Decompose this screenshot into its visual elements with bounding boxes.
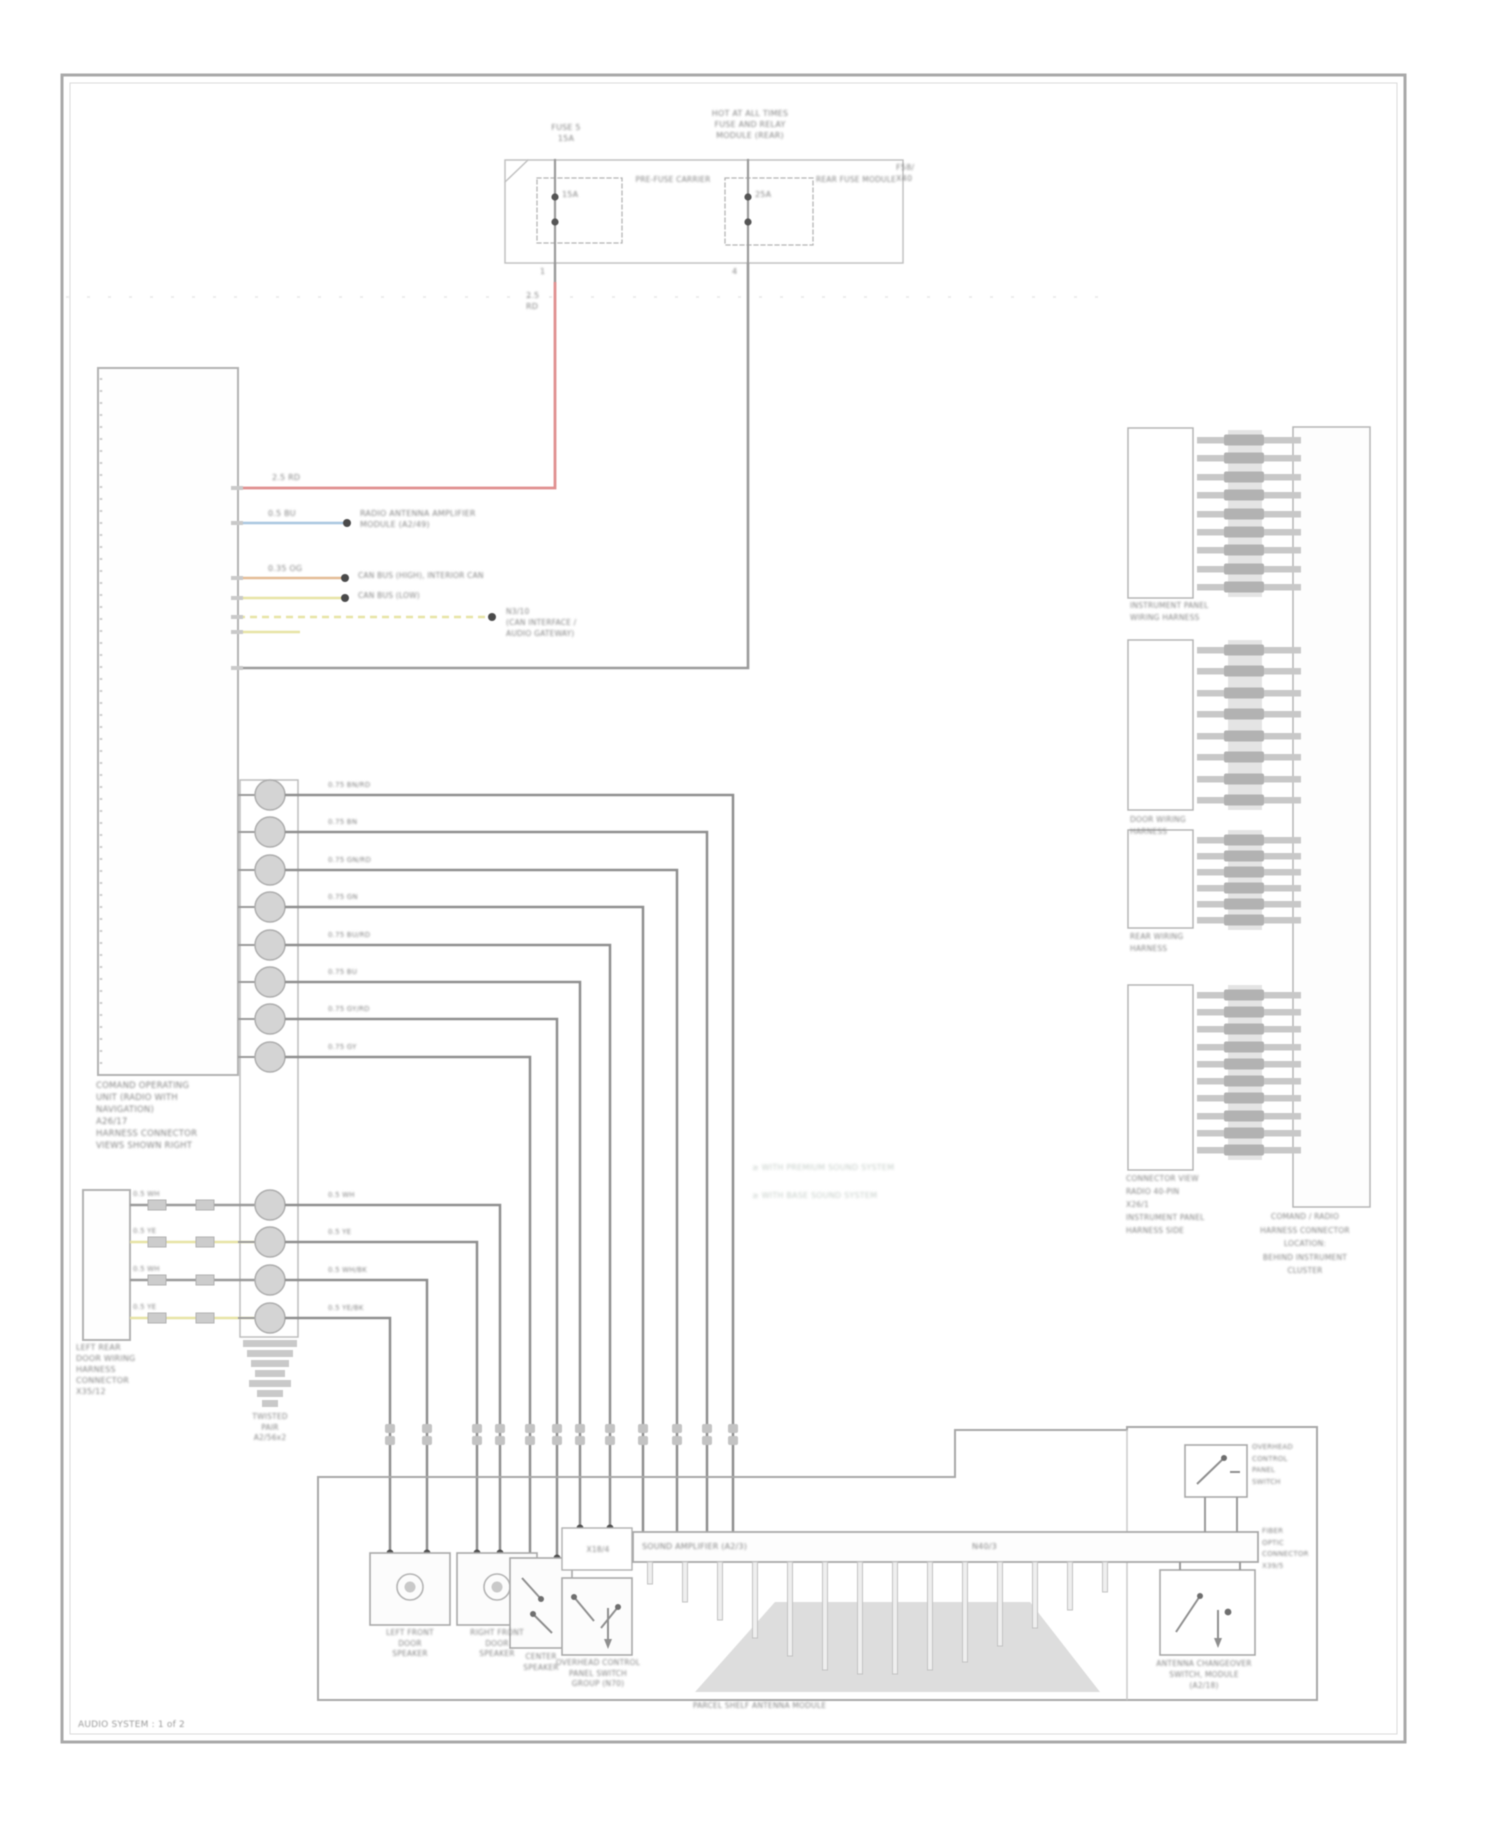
speaker-icon xyxy=(405,1582,416,1593)
can-low-destination: CAN BUS (LOW) xyxy=(358,590,488,601)
connector-panel-label: COMAND / RADIO HARNESS CONNECTOR LOCATIO… xyxy=(1238,1210,1372,1278)
fuse2-amps: 25A xyxy=(755,189,795,200)
connector-block-4 xyxy=(1128,985,1193,1170)
gray-supply-wire xyxy=(238,263,748,668)
wire-gauge-label: 0.75 BU/RD xyxy=(328,931,388,940)
wire-gauge-label: 0.75 BN/RD xyxy=(328,781,388,790)
inline-connector-symbols xyxy=(385,1424,738,1445)
twisted-pair-icon xyxy=(255,780,285,810)
connector-block4-label: CONNECTOR VIEW RADIO 40-PIN X26/1 INSTRU… xyxy=(1126,1172,1242,1237)
red-wire-label: 2.5 RD xyxy=(272,472,328,483)
wire-gauge-label: 0.75 BU xyxy=(328,968,388,977)
right-switch-bottom xyxy=(1160,1562,1255,1655)
diagram-notes: ≥ WITH PREMIUM SOUND SYSTEM ≥ WITH BASE … xyxy=(752,1154,992,1210)
speaker-wire xyxy=(285,1242,477,1553)
wire-gauge-label: 0.5 WH xyxy=(133,1265,173,1274)
wire-gauge-label: 0.5 YE/BK xyxy=(328,1304,388,1313)
diagram-caption: AUDIO SYSTEM : 1 of 2 xyxy=(78,1720,318,1731)
head-unit-box xyxy=(98,368,243,1075)
wire1-code: 2.5 RD xyxy=(526,290,556,312)
antenna-mound-label: PARCEL SHELF ANTENNA MODULE xyxy=(652,1700,867,1711)
wire-gauge-label: 0.5 WH xyxy=(328,1191,388,1200)
speaker-wire xyxy=(285,907,643,1532)
twisted-pair-icon xyxy=(255,1004,285,1034)
right-switch-top xyxy=(1185,1445,1247,1532)
wire-gauge-label: 0.5 YE xyxy=(133,1303,173,1312)
fuse1-top-label: FUSE 5 15A xyxy=(526,122,606,144)
speaker-wire xyxy=(285,982,580,1528)
twisted-pair-icon xyxy=(255,1190,285,1220)
module-label: REAR FUSE MODULE xyxy=(814,174,898,185)
inline-connector-icon xyxy=(196,1275,214,1285)
rear-harness-label: LEFT REAR DOOR WIRING HARNESS CONNECTOR … xyxy=(76,1342,196,1397)
connector-block-3 xyxy=(1128,830,1193,928)
splice-dot-icon xyxy=(343,519,351,527)
orange-wire-label: 0.35 OG xyxy=(268,563,324,574)
splice-dot-icon xyxy=(488,613,496,621)
fuse1-terminal-icon xyxy=(551,193,558,200)
fusebox-title: HOT AT ALL TIMES FUSE AND RELAY MODULE (… xyxy=(685,108,815,141)
inline-connector-icon xyxy=(148,1313,166,1323)
power-wires xyxy=(238,263,748,668)
splice-dot-icon xyxy=(341,574,349,582)
right-switch-top-label: OVERHEAD CONTROL PANEL SWITCH xyxy=(1252,1442,1316,1488)
connector-block1-label: INSTRUMENT PANEL WIRING HARNESS xyxy=(1130,600,1242,624)
inline-connector-icon xyxy=(196,1313,214,1323)
red-power-wire xyxy=(238,282,555,488)
twisted-pair-symbols xyxy=(238,780,285,1333)
fuse2-terminal-icon xyxy=(744,193,751,200)
twisted-pair-label: TWISTED PAIR A2/56x2 xyxy=(234,1412,306,1444)
amplifier-bar-label: SOUND AMPLIFIER (A2/3) xyxy=(642,1541,812,1552)
twisted-pair-icon xyxy=(255,817,285,847)
gateway-destination: N3/10 (CAN INTERFACE / AUDIO GATEWAY) xyxy=(506,606,636,639)
switch-group-label: OVERHEAD CONTROL PANEL SWITCH GROUP (N70… xyxy=(536,1658,660,1690)
wire-gauge-label: 0.75 GN/RD xyxy=(328,856,388,865)
splice-dot-icon xyxy=(341,594,349,602)
twisted-pair-icon xyxy=(255,967,285,997)
blue-wire-destination: RADIO ANTENNA AMPLIFIER MODULE (A2/49) xyxy=(360,508,520,530)
speaker-wires xyxy=(285,795,733,1562)
fuse1-amps: 15A xyxy=(562,189,602,200)
fusebox-right-tag: F58/ X40 xyxy=(896,162,940,184)
connector-pin-ladders xyxy=(1197,430,1301,1160)
twisted-pair-icon xyxy=(255,855,285,885)
speaker-left-front xyxy=(370,1553,450,1625)
speaker-wire xyxy=(285,1057,530,1558)
speaker-wire xyxy=(285,795,733,1532)
fuse2-terminal-icon xyxy=(744,218,751,225)
twisted-pair-icon xyxy=(255,930,285,960)
fuse2-pin: 4 xyxy=(732,266,748,277)
speaker1-label: LEFT FRONT DOOR SPEAKER xyxy=(362,1628,458,1660)
inline-connector-icon xyxy=(196,1237,214,1247)
speaker-icon xyxy=(492,1582,503,1593)
connector-location-panel xyxy=(1293,427,1370,1207)
shield-funnel-icon xyxy=(243,1340,297,1407)
wire-gauge-label: 0.5 YE xyxy=(133,1227,173,1236)
wiring-diagram-page: FUSE 5 15A HOT AT ALL TIMES FUSE AND REL… xyxy=(0,0,1500,1828)
wire-gauge-label: 0.75 GY/RD xyxy=(328,1005,388,1014)
blue-wire-label: 0.5 BU xyxy=(268,508,324,519)
fuse1-pin: 1 xyxy=(540,266,556,277)
twisted-pair-icon xyxy=(255,1227,285,1257)
switch-group-tag: X18/4 xyxy=(568,1544,628,1555)
twisted-pair-icon xyxy=(255,892,285,922)
twisted-pair-icon xyxy=(255,1303,285,1333)
fuse1-terminal-icon xyxy=(551,218,558,225)
amplifier-bar-tag: N40/3 xyxy=(972,1541,1022,1552)
connector-block3-label: REAR WIRING HARNESS xyxy=(1130,931,1242,955)
wire-gauge-label: 0.75 GN xyxy=(328,893,388,902)
right-switch-bottom-label: ANTENNA CHANGEOVER SWITCH, MODULE (A2/18… xyxy=(1138,1658,1270,1691)
inline-connector-icon xyxy=(196,1200,214,1210)
carrier-label: PRE-FUSE CARRIER xyxy=(620,174,726,185)
wire-gauge-label: 0.5 WH/BK xyxy=(328,1266,388,1275)
wire-gauge-label: 0.5 WH xyxy=(133,1190,173,1199)
twisted-pair-icon xyxy=(255,1265,285,1295)
connector-block-1 xyxy=(1128,428,1193,598)
speaker-wire xyxy=(285,1280,427,1553)
inline-connector-icon xyxy=(148,1237,166,1247)
wire-gauge-label: 0.75 GY xyxy=(328,1043,388,1052)
head-unit-label: COMAND OPERATING UNIT (RADIO WITH NAVIGA… xyxy=(96,1080,246,1152)
can-high-destination: CAN BUS (HIGH), INTERIOR CAN xyxy=(358,570,528,581)
connector-block2-label: DOOR WIRING HARNESS xyxy=(1130,814,1242,838)
twisted-pair-icon xyxy=(255,1042,285,1072)
connector-block-2 xyxy=(1128,640,1193,810)
inline-connector-icon xyxy=(148,1200,166,1210)
wire-gauge-label: 0.75 BN xyxy=(328,818,388,827)
inline-connector-icon xyxy=(148,1275,166,1285)
wire-gauge-label: 0.5 YE xyxy=(328,1228,388,1237)
bar-end-label: FIBER OPTIC CONNECTOR X39/5 xyxy=(1262,1526,1324,1572)
